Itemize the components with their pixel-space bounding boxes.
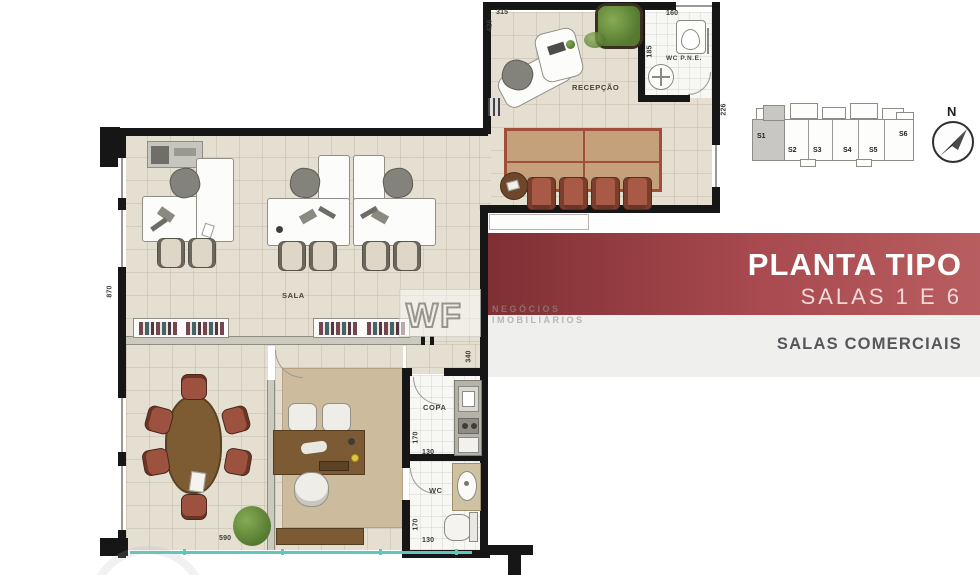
dim-sala-depth: 870 <box>107 282 114 302</box>
wc-sink <box>457 471 477 501</box>
office-guest-chair-2 <box>322 403 351 432</box>
desk-c <box>353 198 436 246</box>
waiting-armchair-1 <box>527 177 556 210</box>
meeting-chair <box>141 447 171 477</box>
wf-monogram: WF <box>406 297 463 335</box>
waiting-armchair-4 <box>623 177 652 210</box>
shelf-unit-1 <box>133 318 229 338</box>
door-jamb-1 <box>421 336 425 345</box>
dim-service-top: 340 <box>466 347 473 367</box>
window-right <box>712 145 720 187</box>
waiting-armchair-3 <box>591 177 620 210</box>
wcpne-toilet <box>676 20 706 54</box>
compass-north-label: N <box>947 104 956 119</box>
glass-tick-4 <box>455 549 458 555</box>
meeting-table <box>165 396 222 494</box>
entry-hatch <box>488 98 502 116</box>
glass-facade <box>130 551 472 554</box>
copa-stove <box>458 418 479 434</box>
keyplan-label-s3: S3 <box>813 147 822 154</box>
wc-drain <box>464 481 469 486</box>
visitor-chair <box>188 238 216 268</box>
dim-wc-depth: 170 <box>413 515 420 535</box>
room-label-sala: SALA <box>282 292 305 300</box>
visitor-chair <box>309 241 337 271</box>
keyplan-label-s1: S1 <box>757 133 766 140</box>
office-desk <box>273 430 365 475</box>
category-label: SALAS COMERCIAIS <box>777 335 962 354</box>
dim-reception-depth: 426 <box>487 16 494 36</box>
shelf-tray <box>174 148 196 156</box>
binders <box>319 322 357 335</box>
keyplan-divider <box>808 120 809 160</box>
keyplan-outline <box>850 103 878 119</box>
meeting-chair <box>181 374 207 400</box>
burner <box>471 423 477 429</box>
wall-wcpne-bottom-corner <box>712 95 720 102</box>
wall-corner-topleft <box>100 127 120 167</box>
wc-toilet-tank <box>469 512 478 542</box>
toilet-bowl <box>681 29 700 50</box>
wall-service-left-upper <box>402 368 410 468</box>
visitor-chair <box>278 241 306 271</box>
magazines <box>506 180 520 192</box>
window-left-4 <box>118 466 126 530</box>
visitor-chair <box>393 241 421 271</box>
window-left-1 <box>118 158 126 198</box>
office-credenza <box>276 528 364 545</box>
wcpne-sink <box>648 64 674 90</box>
window-left-2 <box>118 210 126 267</box>
wall-wcpne-bottom <box>638 95 690 102</box>
desk-b-item <box>276 226 283 233</box>
keyplan-outline <box>822 107 846 119</box>
door-jamb-2 <box>430 336 434 345</box>
window-left-3 <box>118 398 126 452</box>
keyplan-notch <box>800 159 816 167</box>
meeting-notepad <box>189 471 207 493</box>
room-label-copa: COPA <box>423 404 447 412</box>
desk-blotter <box>319 461 349 471</box>
room-label-reception: RECEPÇÃO <box>572 84 619 92</box>
dim-wc-width: 130 <box>422 537 434 544</box>
desk-a-return <box>196 158 234 242</box>
office-exec-chair <box>294 472 329 507</box>
visitor-chair <box>362 241 390 271</box>
wall-copa-top-a <box>402 368 412 376</box>
wf-logo: WF <box>404 291 482 337</box>
dim-copa-depth: 170 <box>413 428 420 448</box>
shelf-unit-2 <box>313 318 410 338</box>
office-guest-chair-1 <box>288 403 317 432</box>
room-label-wc: WC <box>429 487 443 495</box>
keyplan-label-s2: S2 <box>788 147 797 154</box>
wall-right-upper <box>712 2 720 145</box>
workstation-shelf <box>147 141 203 168</box>
compass-needle <box>934 123 972 161</box>
plan-title: PLANTA TIPO <box>748 247 962 283</box>
copa-sink-unit <box>458 386 479 412</box>
dim-reception-width: 315 <box>496 9 508 16</box>
wall-sala-top <box>120 128 488 136</box>
visitor-chair <box>157 238 185 268</box>
glass-tick-1 <box>183 549 186 555</box>
waiting-armchair-2 <box>559 177 588 210</box>
exterior-ledge <box>489 214 589 230</box>
keyplan-label-s5: S5 <box>869 147 878 154</box>
binders <box>139 322 177 335</box>
floor-plant <box>233 506 271 546</box>
floor-connector <box>479 134 491 210</box>
dim-wcpne-width: 160 <box>666 10 678 17</box>
keyplan-notch <box>856 159 872 167</box>
desk-item-yellow <box>351 454 359 462</box>
burner <box>462 423 468 429</box>
shelf-equipment <box>151 146 169 164</box>
dim-wcpne-depth: 185 <box>647 42 654 62</box>
side-table <box>500 172 528 200</box>
plan-subtitle: SALAS 1 E 6 <box>801 284 962 310</box>
dim-copa-width: 130 <box>422 449 434 456</box>
copa-sink <box>462 391 475 407</box>
glass-tick-2 <box>281 549 284 555</box>
room-label-wc-pne: WC P.N.E. <box>666 56 702 63</box>
binders <box>186 322 224 335</box>
grab-bar <box>707 28 709 54</box>
wc-vanity <box>452 463 481 511</box>
wc-toilet-bowl <box>444 514 472 541</box>
dim-side-right: 226 <box>721 100 728 120</box>
title-banner: PLANTA TIPO SALAS 1 E 6 <box>487 233 980 315</box>
compass <box>932 121 974 163</box>
keyplan-outline <box>790 103 818 119</box>
window-wcpne-top <box>676 2 712 10</box>
marketing-sheet: PLANTA TIPO SALAS 1 E 6 SALAS COMERCIAIS <box>0 0 980 575</box>
keyplan-divider <box>884 120 885 160</box>
glass-tick-3 <box>379 549 382 555</box>
logo-line2: IMOBILIÁRIOS <box>492 315 585 325</box>
planter-foliage <box>584 32 606 48</box>
keyplan-unit-s1-ext <box>763 105 785 121</box>
copa-counter <box>454 380 482 456</box>
copa-cart <box>458 437 479 453</box>
dim-facade: 590 <box>219 535 231 542</box>
meeting-chair <box>181 494 207 520</box>
meeting-chair <box>223 447 253 477</box>
desk-phone <box>300 440 327 455</box>
wall-stub-vertical <box>508 545 521 575</box>
keyplan-divider <box>832 120 833 160</box>
desk-plant-icon <box>566 40 575 49</box>
faucet-line-h <box>652 76 670 78</box>
keyplan-divider <box>858 120 859 160</box>
keyplan-label-s4: S4 <box>843 147 852 154</box>
desk-item-dark <box>348 438 355 445</box>
wall-copa-top-b <box>444 368 488 376</box>
keyplan-unit-s1-highlight <box>752 119 785 161</box>
logo-line1: NEGÓCIOS <box>492 304 561 314</box>
desk-b <box>267 198 350 246</box>
keyplan-label-s6: S6 <box>899 131 908 138</box>
